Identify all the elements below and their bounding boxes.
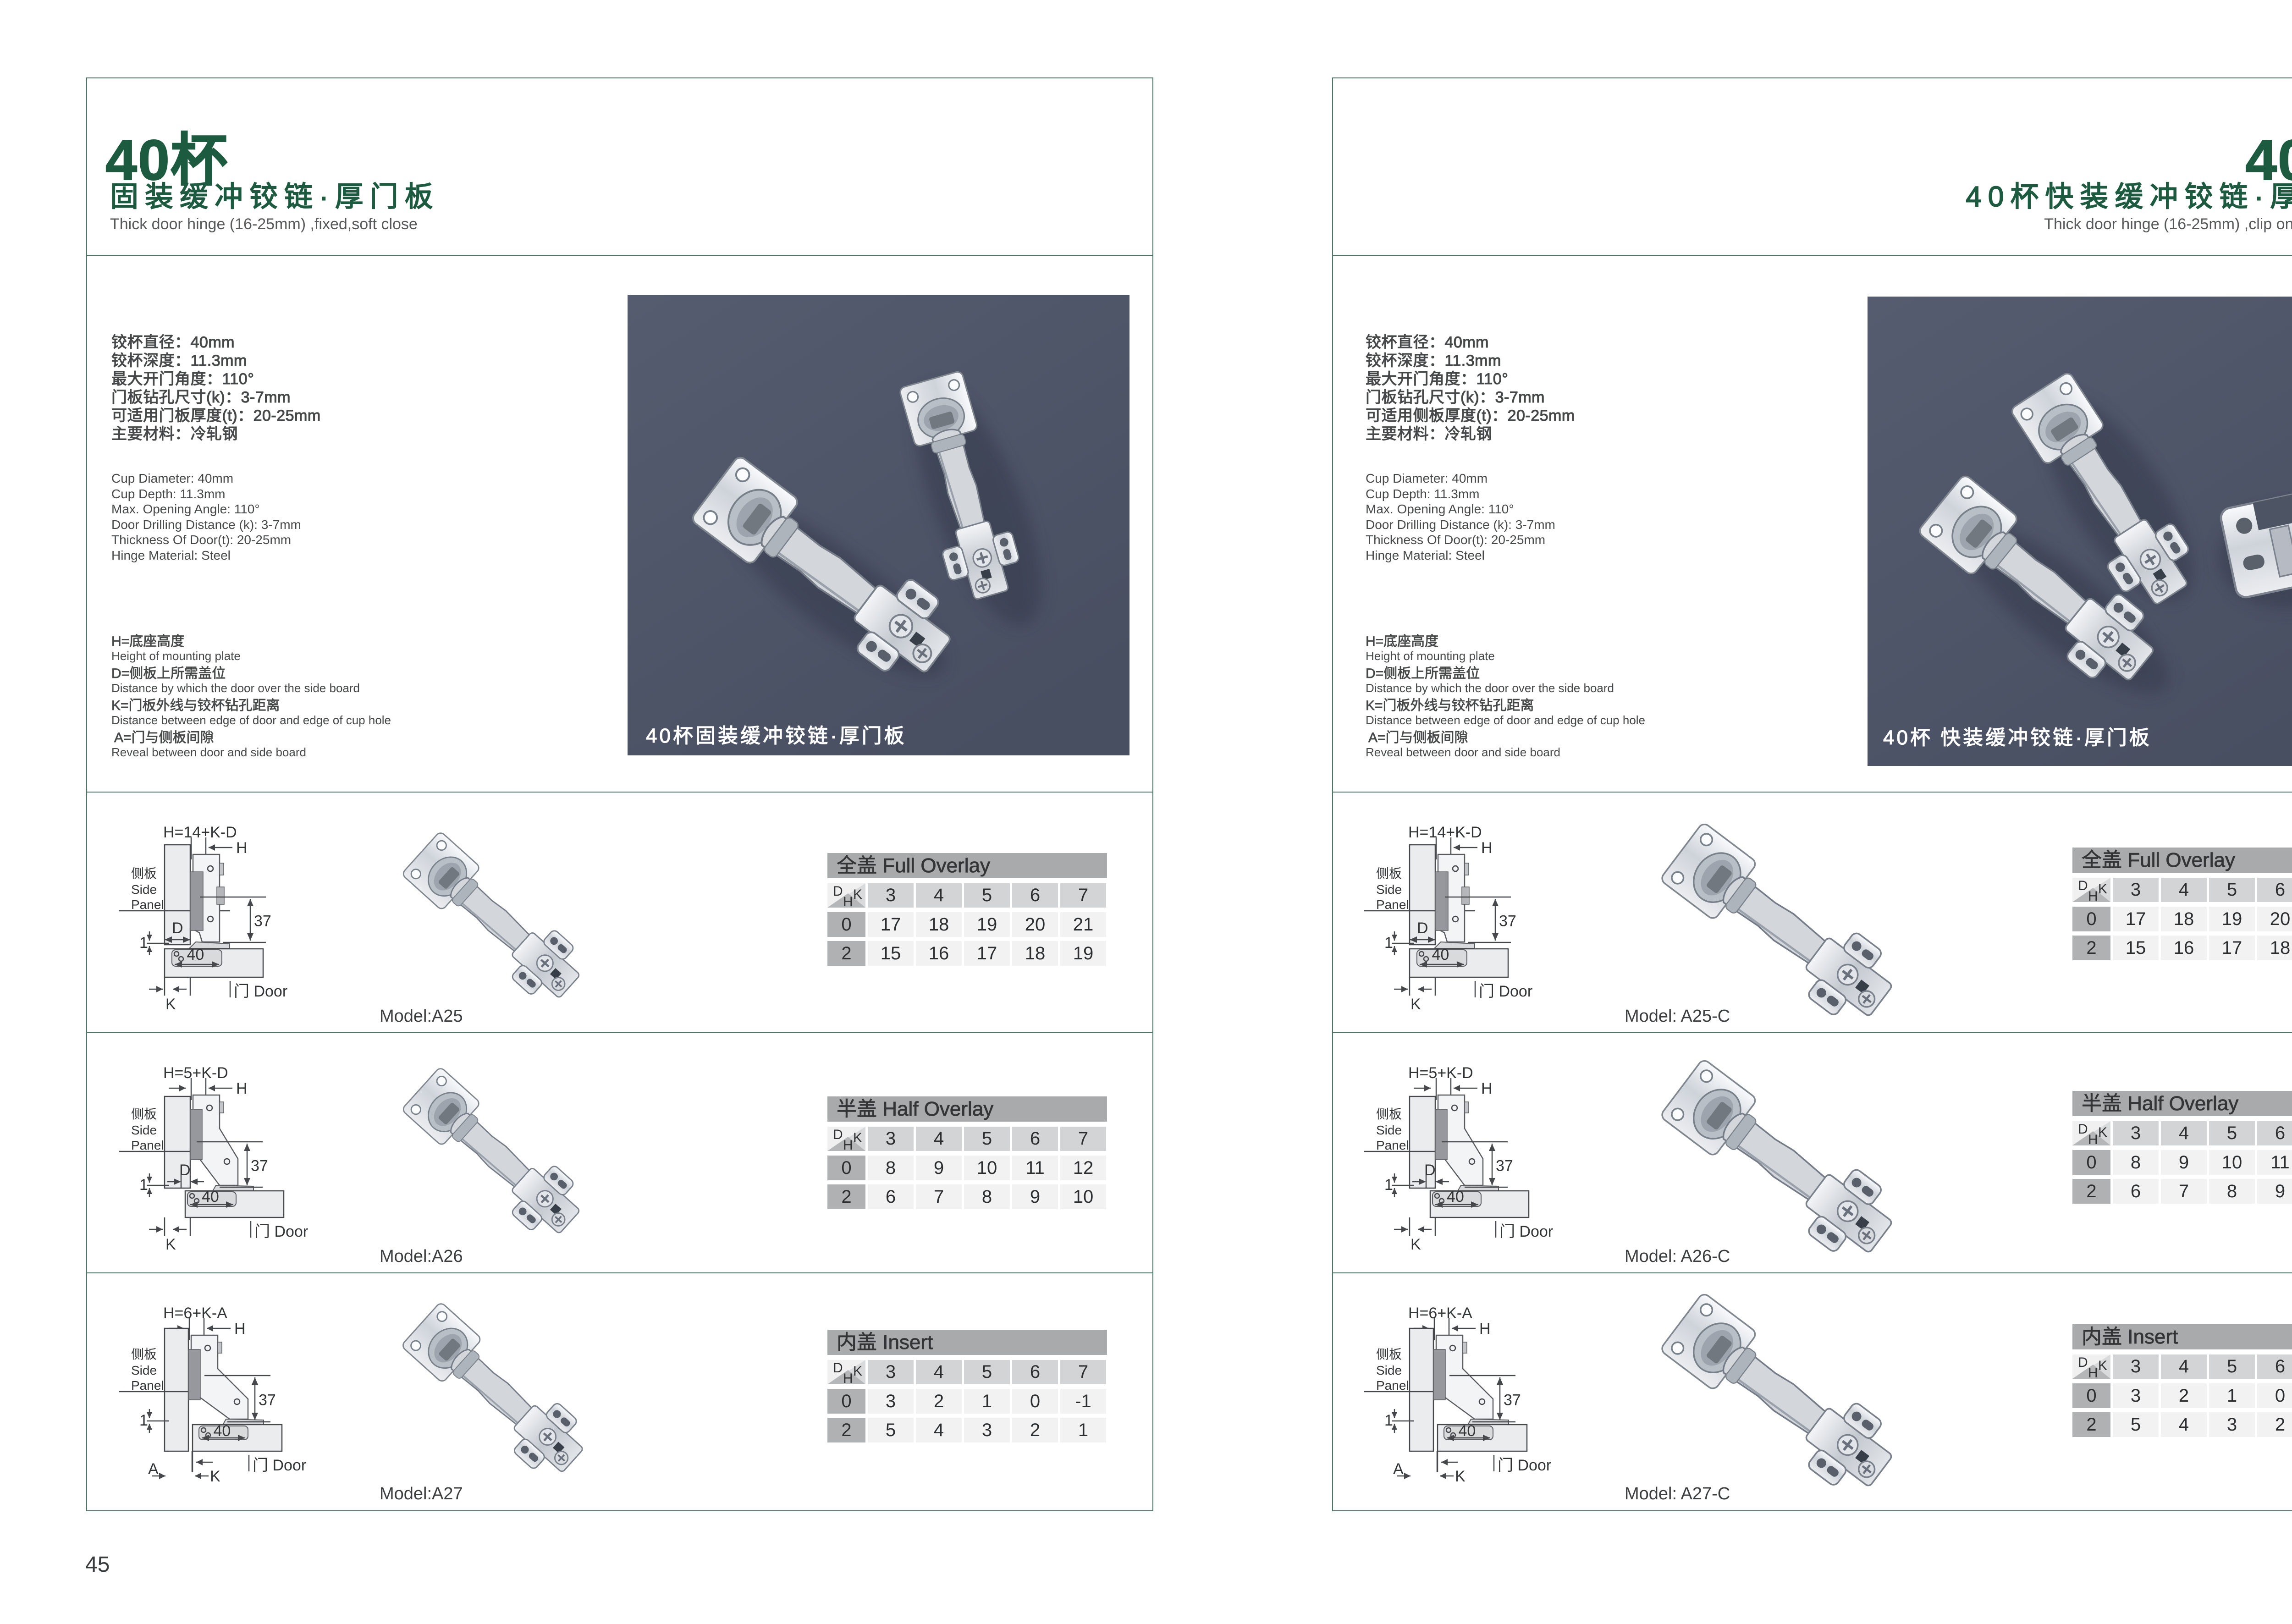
svg-text:D: D bbox=[2078, 1122, 2088, 1137]
svg-text:Side: Side bbox=[131, 1363, 157, 1377]
svg-text:侧板: 侧板 bbox=[131, 1347, 157, 1361]
svg-text:H: H bbox=[236, 839, 248, 857]
svg-text:侧板: 侧板 bbox=[1376, 866, 1402, 881]
svg-text:Panel: Panel bbox=[131, 897, 164, 912]
svg-text:Side: Side bbox=[1376, 1123, 1402, 1137]
svg-text:门 Door: 门 Door bbox=[254, 1223, 308, 1240]
svg-text:侧板: 侧板 bbox=[1376, 1107, 1402, 1121]
svg-text:D: D bbox=[2078, 878, 2088, 893]
svg-text:侧板: 侧板 bbox=[1376, 1347, 1402, 1361]
svg-text:H=14+K-D: H=14+K-D bbox=[163, 824, 237, 841]
svg-text:门 Door: 门 Door bbox=[234, 983, 287, 1000]
svg-text:D: D bbox=[172, 919, 183, 937]
svg-text:Side: Side bbox=[1376, 882, 1402, 897]
svg-text:K: K bbox=[2098, 1358, 2107, 1373]
svg-text:H=6+K-A: H=6+K-A bbox=[163, 1305, 227, 1322]
svg-text:Panel: Panel bbox=[1376, 1378, 1409, 1393]
svg-text:K: K bbox=[853, 1364, 862, 1379]
svg-text:37: 37 bbox=[251, 1157, 268, 1175]
svg-text:门 Door: 门 Door bbox=[1499, 1223, 1553, 1240]
svg-text:H: H bbox=[1481, 839, 1493, 857]
svg-text:侧板: 侧板 bbox=[131, 1107, 157, 1121]
svg-text:D: D bbox=[1417, 919, 1428, 937]
svg-text:K: K bbox=[210, 1468, 220, 1485]
svg-text:H: H bbox=[2088, 889, 2098, 902]
svg-text:K: K bbox=[853, 1130, 862, 1145]
svg-text:H=14+K-D: H=14+K-D bbox=[1408, 824, 1482, 841]
svg-text:门 Door: 门 Door bbox=[253, 1457, 306, 1474]
svg-text:K: K bbox=[1410, 996, 1421, 1013]
svg-text:K: K bbox=[853, 887, 862, 902]
svg-text:37: 37 bbox=[259, 1392, 276, 1409]
svg-text:37: 37 bbox=[1504, 1392, 1521, 1409]
svg-text:40: 40 bbox=[1432, 946, 1449, 963]
svg-text:K: K bbox=[1410, 1236, 1421, 1253]
svg-text:H: H bbox=[234, 1320, 246, 1338]
svg-text:A: A bbox=[1393, 1460, 1404, 1478]
svg-text:H=5+K-D: H=5+K-D bbox=[163, 1064, 228, 1082]
svg-text:K: K bbox=[165, 1236, 176, 1253]
svg-text:K: K bbox=[2098, 881, 2107, 897]
svg-text:40: 40 bbox=[214, 1422, 231, 1440]
svg-text:H=5+K-D: H=5+K-D bbox=[1408, 1064, 1473, 1082]
svg-text:H=6+K-A: H=6+K-A bbox=[1408, 1305, 1472, 1322]
svg-text:门 Door: 门 Door bbox=[1479, 983, 1532, 1000]
svg-text:37: 37 bbox=[254, 913, 271, 930]
svg-text:K: K bbox=[165, 996, 176, 1013]
svg-text:D: D bbox=[2078, 1355, 2088, 1370]
svg-text:37: 37 bbox=[1499, 913, 1516, 930]
svg-text:H: H bbox=[2088, 1132, 2098, 1145]
svg-text:侧板: 侧板 bbox=[131, 866, 157, 881]
svg-text:D: D bbox=[833, 1360, 843, 1376]
svg-text:40: 40 bbox=[1459, 1422, 1476, 1440]
svg-text:H: H bbox=[236, 1080, 248, 1097]
svg-text:A: A bbox=[148, 1460, 159, 1478]
svg-text:37: 37 bbox=[1496, 1157, 1513, 1175]
svg-text:Panel: Panel bbox=[131, 1138, 164, 1152]
svg-text:D: D bbox=[833, 1127, 843, 1142]
svg-text:40: 40 bbox=[1447, 1188, 1464, 1206]
svg-text:Side: Side bbox=[131, 882, 157, 897]
svg-text:H: H bbox=[843, 1138, 853, 1151]
svg-text:H: H bbox=[843, 894, 853, 908]
svg-text:Side: Side bbox=[1376, 1363, 1402, 1377]
svg-text:Panel: Panel bbox=[1376, 1138, 1409, 1152]
svg-text:40: 40 bbox=[187, 946, 204, 963]
svg-text:Side: Side bbox=[131, 1123, 157, 1137]
svg-text:K: K bbox=[2098, 1125, 2107, 1140]
svg-text:40: 40 bbox=[202, 1188, 219, 1206]
svg-text:门 Door: 门 Door bbox=[1498, 1457, 1551, 1474]
svg-text:D: D bbox=[833, 884, 843, 899]
svg-text:H: H bbox=[2088, 1365, 2098, 1379]
svg-text:Panel: Panel bbox=[1376, 897, 1409, 912]
svg-text:H: H bbox=[1481, 1080, 1493, 1097]
svg-text:Panel: Panel bbox=[131, 1378, 164, 1393]
svg-text:K: K bbox=[1455, 1468, 1466, 1485]
svg-text:H: H bbox=[843, 1371, 853, 1384]
svg-text:H: H bbox=[1479, 1320, 1491, 1338]
